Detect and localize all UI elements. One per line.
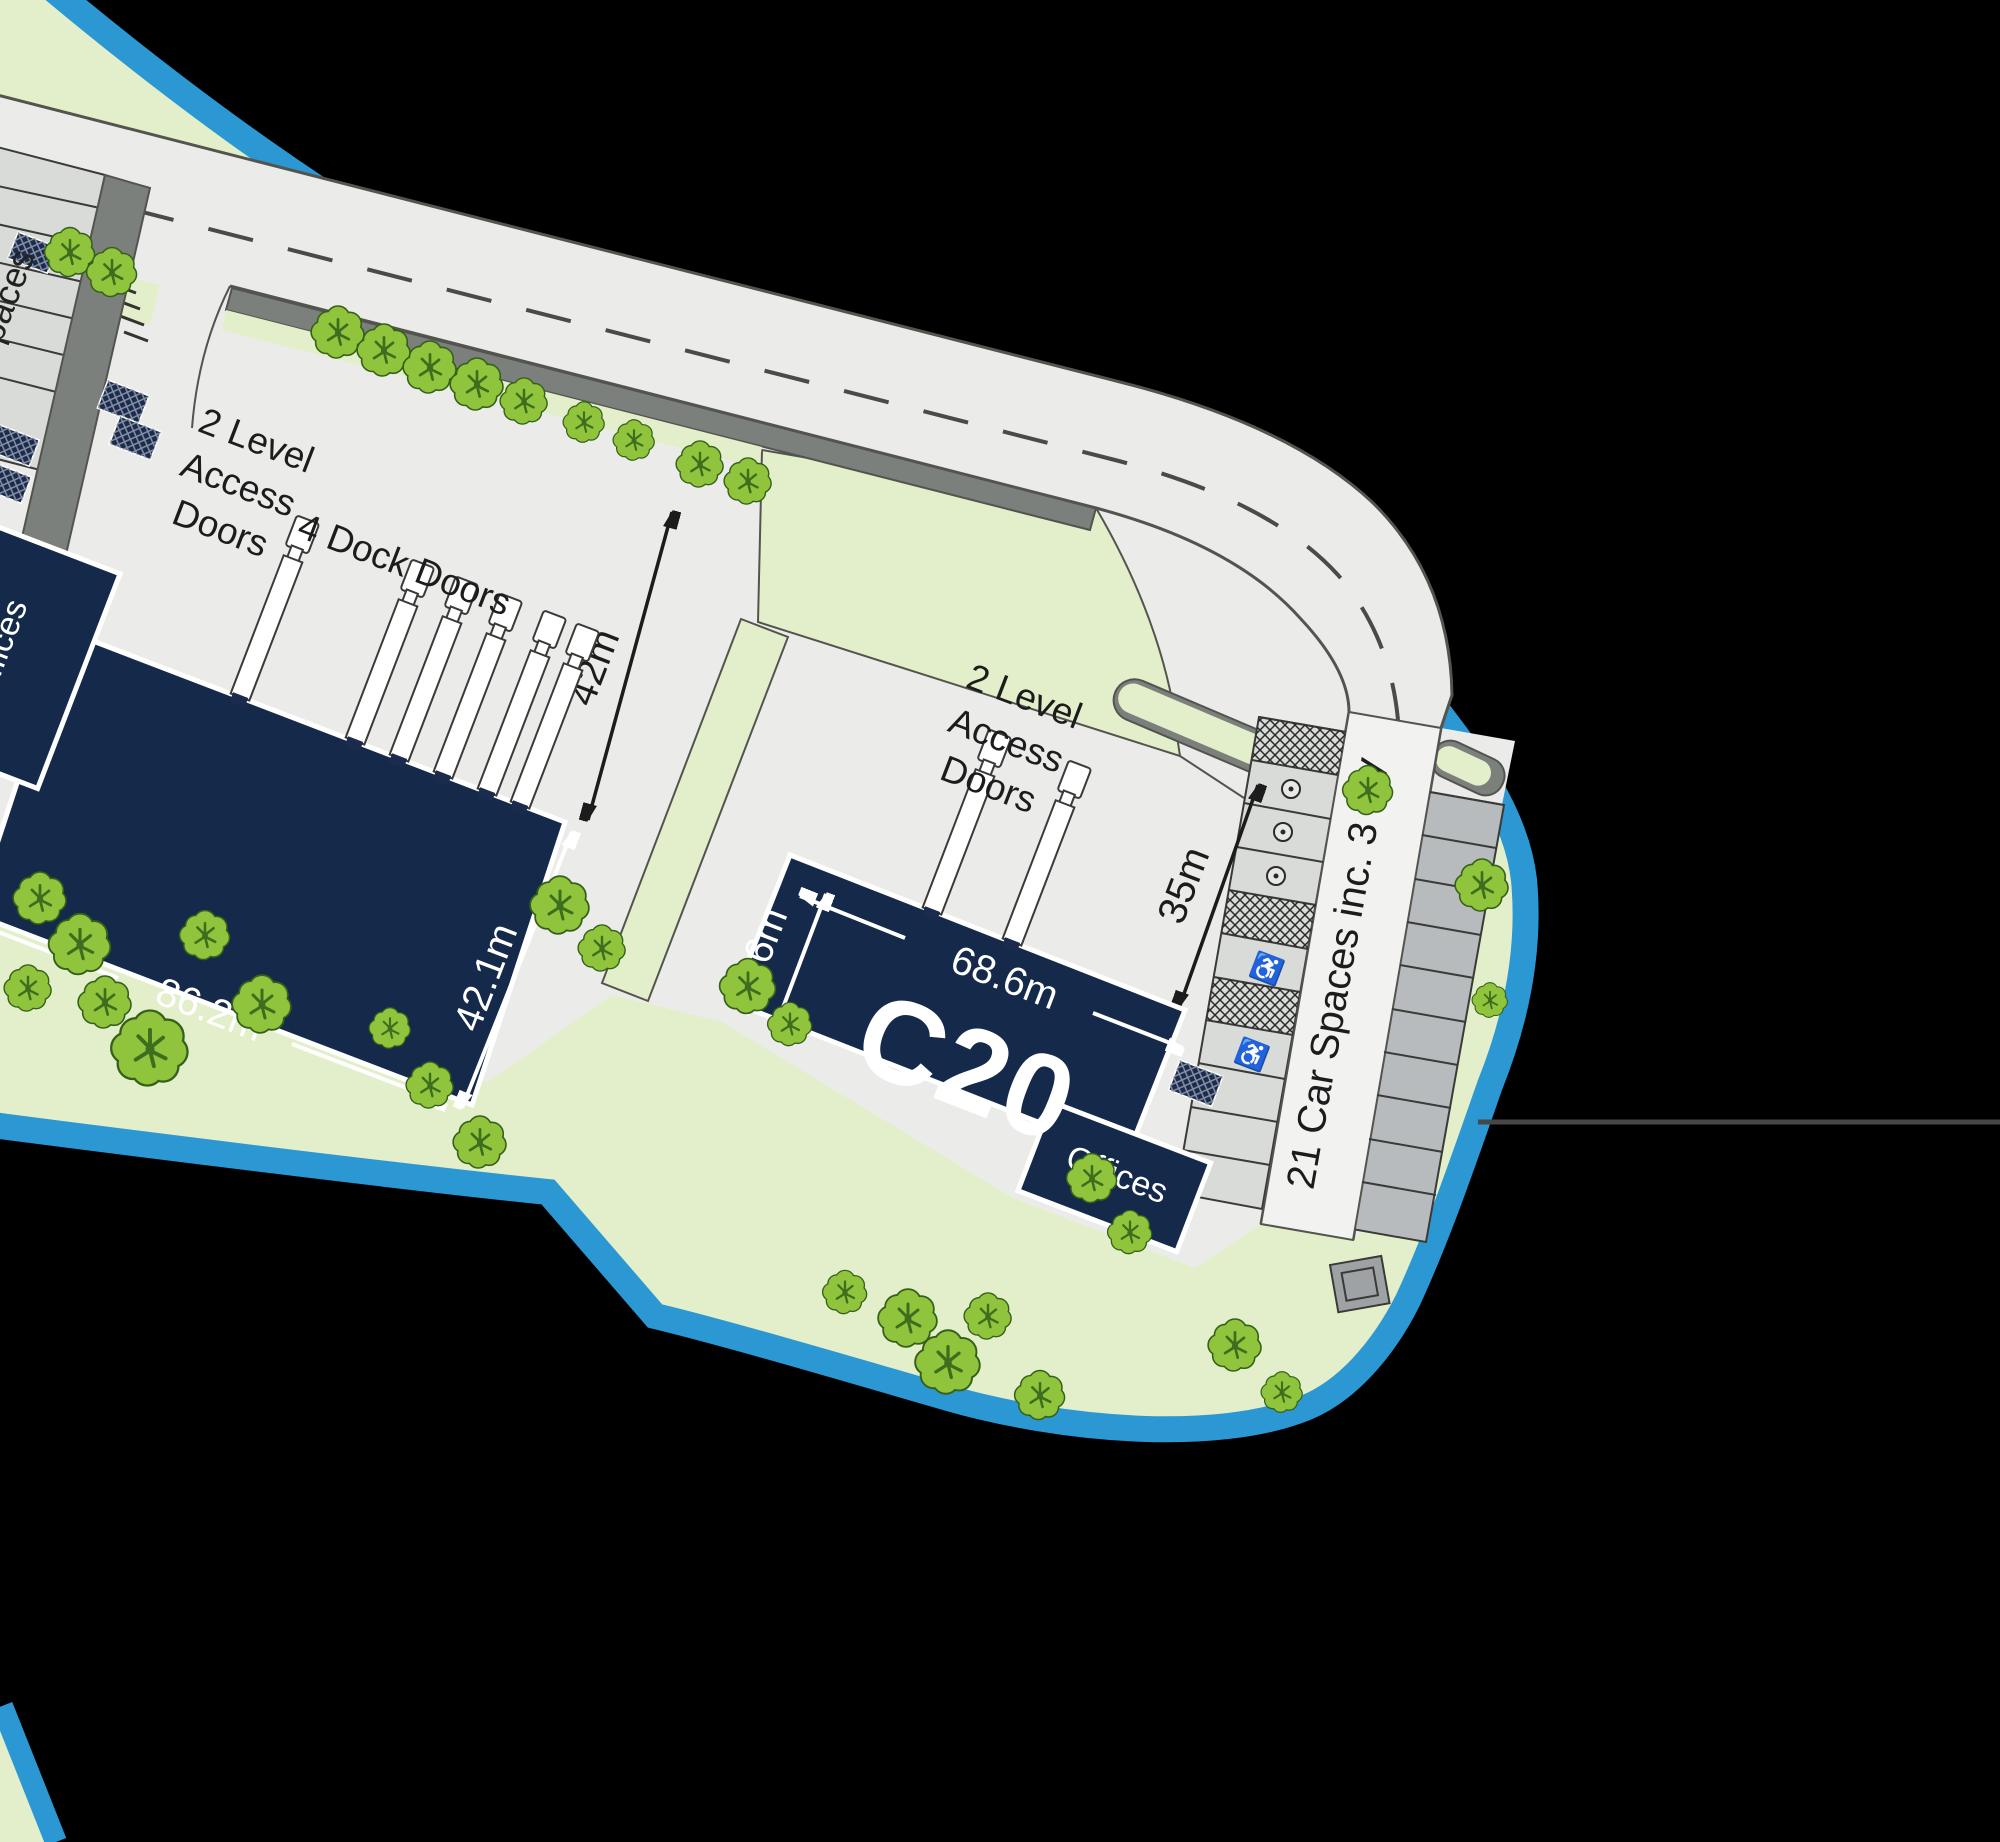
site-plan: paces ♿ ♿ <box>0 0 2000 1842</box>
substation <box>1330 1256 1390 1312</box>
